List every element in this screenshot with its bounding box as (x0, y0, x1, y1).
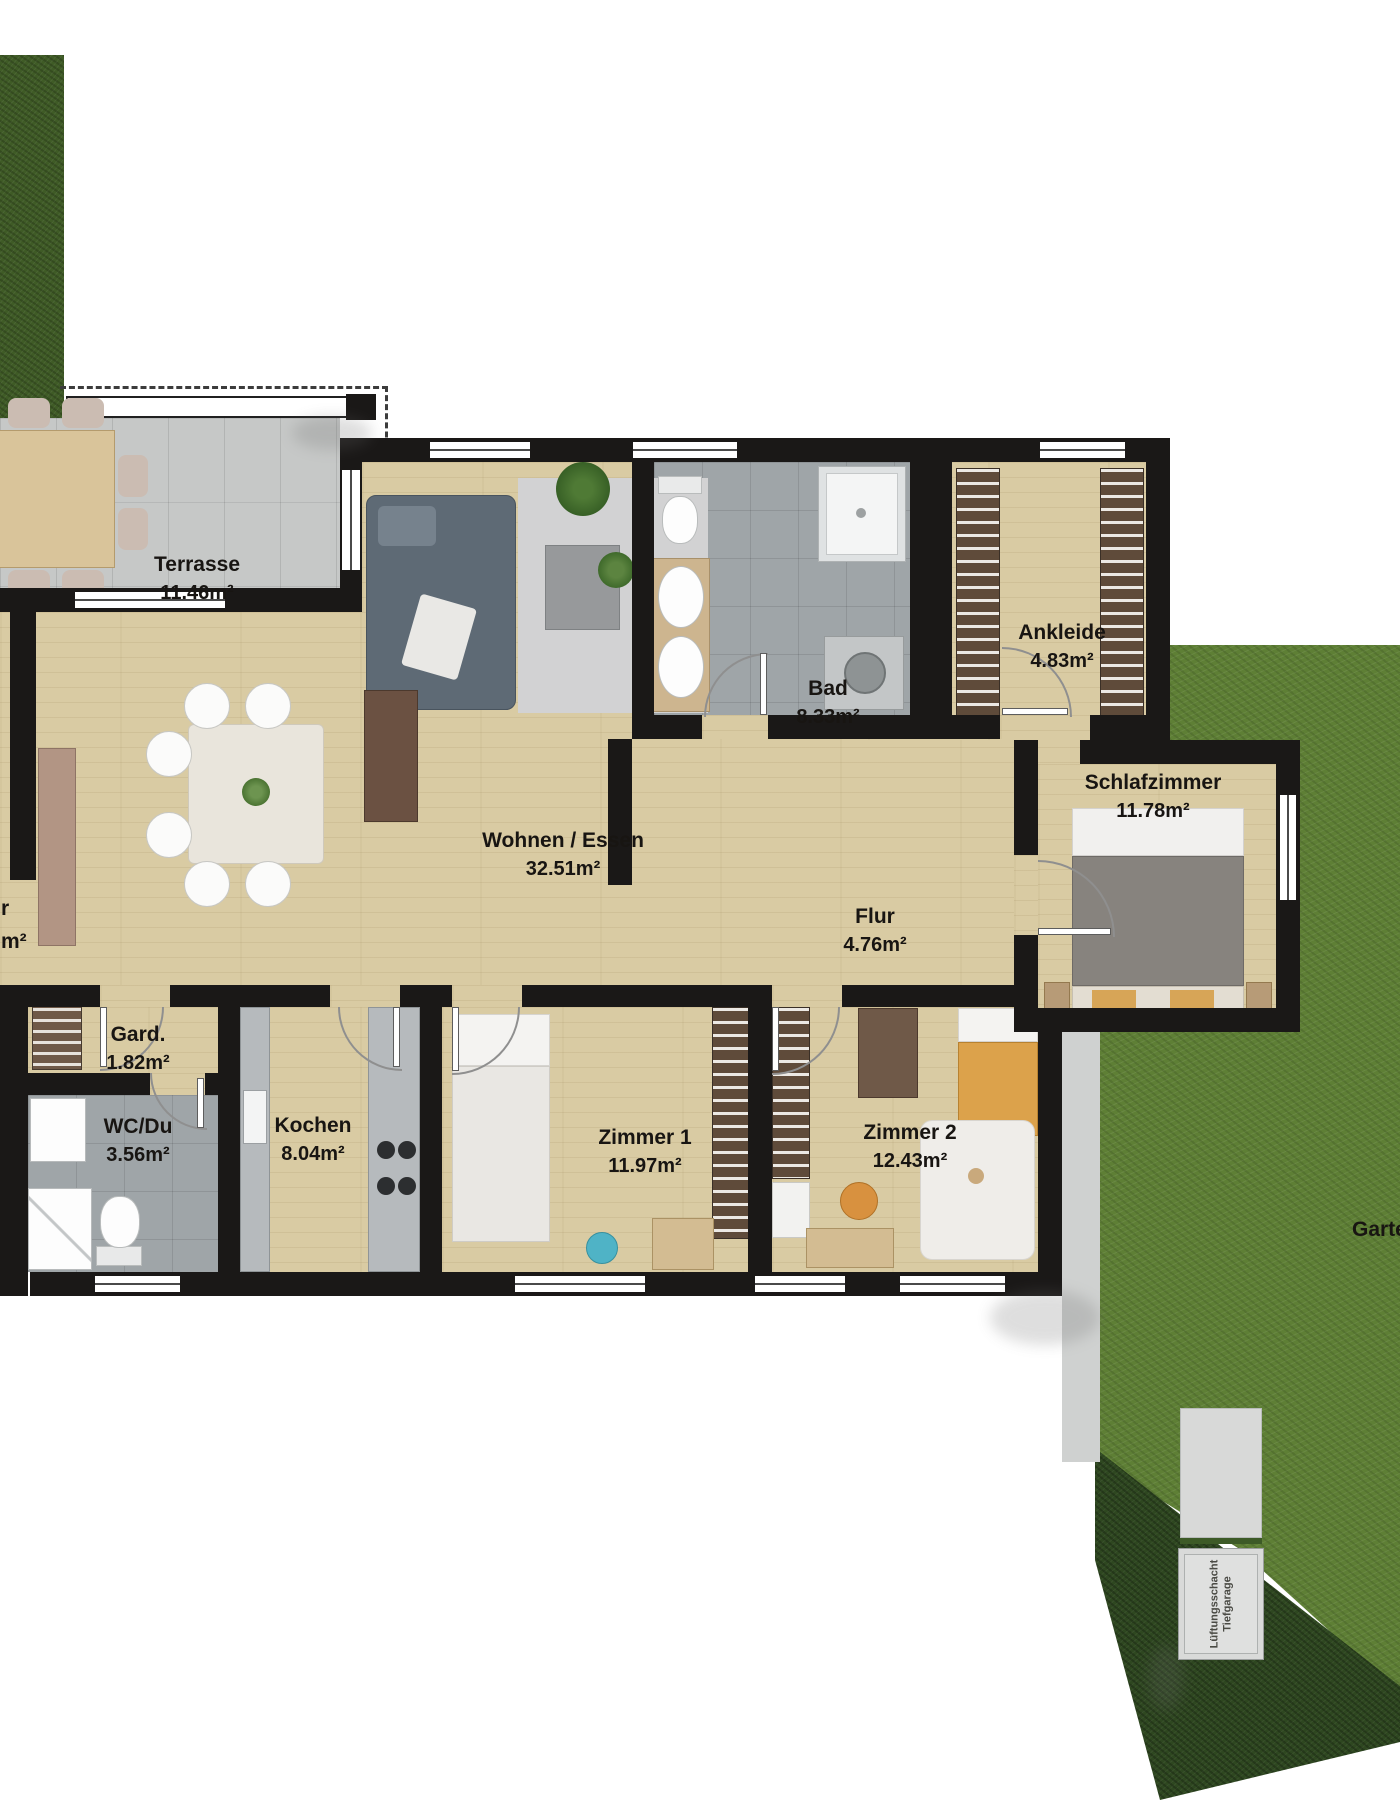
sofa-cushion (378, 506, 436, 546)
bed-single-body (452, 1066, 550, 1242)
dining-chair (146, 812, 192, 858)
room-label-zimmer1: Zimmer 1 11.97m² (598, 1124, 691, 1180)
room-name: Zimmer 1 (598, 1124, 691, 1152)
left-partial-label-line1: r (1, 892, 9, 925)
toilet-tank (658, 476, 702, 494)
wc-sink (30, 1098, 86, 1162)
room-name: Gard. (106, 1021, 169, 1049)
room-area: 11.78m² (1085, 797, 1222, 825)
sideboard-dark (364, 690, 418, 822)
room-area: 11.97m² (598, 1152, 691, 1180)
door-opening (1014, 855, 1038, 935)
window (633, 442, 737, 458)
door-leaf (1002, 708, 1068, 715)
wall (420, 985, 442, 1272)
wall (1038, 1008, 1300, 1032)
window (342, 470, 360, 570)
wall (632, 462, 654, 715)
wall (1014, 935, 1038, 1032)
dresser-white (772, 1182, 810, 1238)
room-area: 3.56m² (104, 1141, 173, 1169)
room-label-schlafzimmer: Schlafzimmer 11.78m² (1085, 769, 1222, 825)
pouf-teal (586, 1232, 618, 1264)
door-leaf (393, 1007, 400, 1067)
window (95, 1276, 180, 1292)
wall (10, 612, 36, 880)
door-leaf (772, 1007, 779, 1071)
room-label-wc-du: WC/Du 3.56m² (104, 1113, 173, 1169)
sink (658, 636, 704, 698)
shaft-divider (1180, 1538, 1262, 1544)
terrace-chair (62, 398, 104, 428)
door-opening (100, 985, 170, 1007)
room-label-kochen: Kochen 8.04m² (274, 1112, 351, 1168)
sideboard-left (38, 748, 76, 946)
cooktop-burner (377, 1177, 395, 1195)
wardrobe (712, 1007, 750, 1239)
terrace-parapet (66, 396, 348, 418)
room-name: Kochen (274, 1112, 351, 1140)
window (1040, 442, 1125, 458)
chair-orange (840, 1182, 878, 1220)
shaft-strip (1180, 1408, 1262, 1538)
wall (1014, 740, 1038, 855)
shadow (292, 416, 372, 450)
dining-chair (146, 731, 192, 777)
wall (1080, 740, 1300, 764)
wall (1090, 715, 1170, 740)
room-name: Flur (843, 903, 906, 931)
room-area: 4.76m² (843, 931, 906, 959)
garden-path (1062, 1032, 1100, 1462)
window (515, 1276, 645, 1292)
shaft-label-line2: Tiefgarage (1221, 1560, 1234, 1649)
terrace-dining-table (0, 430, 115, 568)
terrace-chair (118, 455, 148, 497)
room-name: Terrasse (154, 551, 240, 579)
room-label-terrasse: Terrasse 11.46m² (154, 551, 240, 607)
room-name: WC/Du (104, 1113, 173, 1141)
room-name: Wohnen / Essen (482, 827, 644, 855)
ventilation-shaft-box: Lüftungsschacht Tiefgarage (1178, 1548, 1264, 1660)
door-opening (772, 985, 842, 1007)
room-label-ankleide: Ankleide 4.83m² (1018, 619, 1106, 675)
cabinet-dark (858, 1008, 918, 1098)
door-leaf (1038, 928, 1111, 935)
dining-chair (184, 683, 230, 729)
room-area: 11.46m² (154, 579, 240, 607)
shadow (990, 1290, 1100, 1345)
window (1280, 795, 1296, 900)
dining-chair (245, 861, 291, 907)
wall (218, 985, 240, 1272)
left-partial-label-line2: m² (1, 925, 27, 958)
cooktop-burner (398, 1141, 416, 1159)
wc-toilet-tank (96, 1246, 142, 1266)
room-area: 4.83m² (1018, 647, 1106, 675)
wall (1038, 1032, 1062, 1296)
dining-chair (245, 683, 291, 729)
room-label-bad: Bad 8.33m² (796, 675, 859, 731)
shaft-label-line1: Lüftungsschacht (1208, 1560, 1221, 1649)
wall (910, 462, 952, 715)
window (430, 442, 530, 458)
window (900, 1276, 1005, 1292)
toilet-bowl (662, 496, 698, 544)
rug-plant (598, 552, 634, 588)
room-area: 32.51m² (482, 855, 644, 883)
wall (0, 985, 28, 1296)
dining-centerpiece (242, 778, 270, 806)
desk-z2 (806, 1228, 894, 1268)
cooktop-burner (377, 1141, 395, 1159)
terrace-chair (8, 398, 50, 428)
wall (748, 985, 772, 1272)
room-area: 8.04m² (274, 1140, 351, 1168)
shower-drain (856, 508, 866, 518)
door-opening (452, 985, 522, 1007)
wardrobe (956, 468, 1000, 732)
door-opening (702, 715, 768, 739)
room-label-gard: Gard. 1.82m² (106, 1021, 169, 1077)
wall (632, 715, 702, 739)
room-name: Zimmer 2 (863, 1119, 956, 1147)
room-name: Ankleide (1018, 619, 1106, 647)
room-name: Bad (796, 675, 859, 703)
wc-toilet-bowl (100, 1196, 140, 1248)
coat-rack (32, 996, 82, 1070)
door-leaf (197, 1078, 204, 1128)
dining-chair (184, 861, 230, 907)
terrace-chair (118, 508, 148, 550)
wc-shower (28, 1188, 92, 1270)
teddy (968, 1168, 984, 1184)
cooktop-burner (398, 1177, 416, 1195)
hedge-top-left (0, 55, 64, 421)
window (755, 1276, 845, 1292)
door-leaf (760, 653, 767, 715)
room-area: 12.43m² (863, 1147, 956, 1175)
garden-label: Garten (1352, 1213, 1400, 1246)
room-label-flur: Flur 4.76m² (843, 903, 906, 959)
room-area: 1.82m² (106, 1049, 169, 1077)
terrace-pillar (346, 394, 376, 420)
room-label-zimmer2: Zimmer 2 12.43m² (863, 1119, 956, 1175)
floor-plant (556, 462, 610, 516)
floor-plan: Lüftungsschacht Tiefgarage (0, 0, 1400, 1800)
door-leaf (452, 1007, 459, 1071)
room-name: Schlafzimmer (1085, 769, 1222, 797)
room-area: 8.33m² (796, 703, 859, 731)
door-opening (330, 985, 400, 1007)
wardrobe (1100, 468, 1144, 732)
door-opening (1000, 715, 1090, 739)
room-label-wohnen-essen: Wohnen / Essen 32.51m² (482, 827, 644, 883)
kitchen-sink (243, 1090, 267, 1144)
desk-z1 (652, 1218, 714, 1270)
sink (658, 566, 704, 628)
shaft-label: Lüftungsschacht Tiefgarage (1208, 1560, 1234, 1649)
